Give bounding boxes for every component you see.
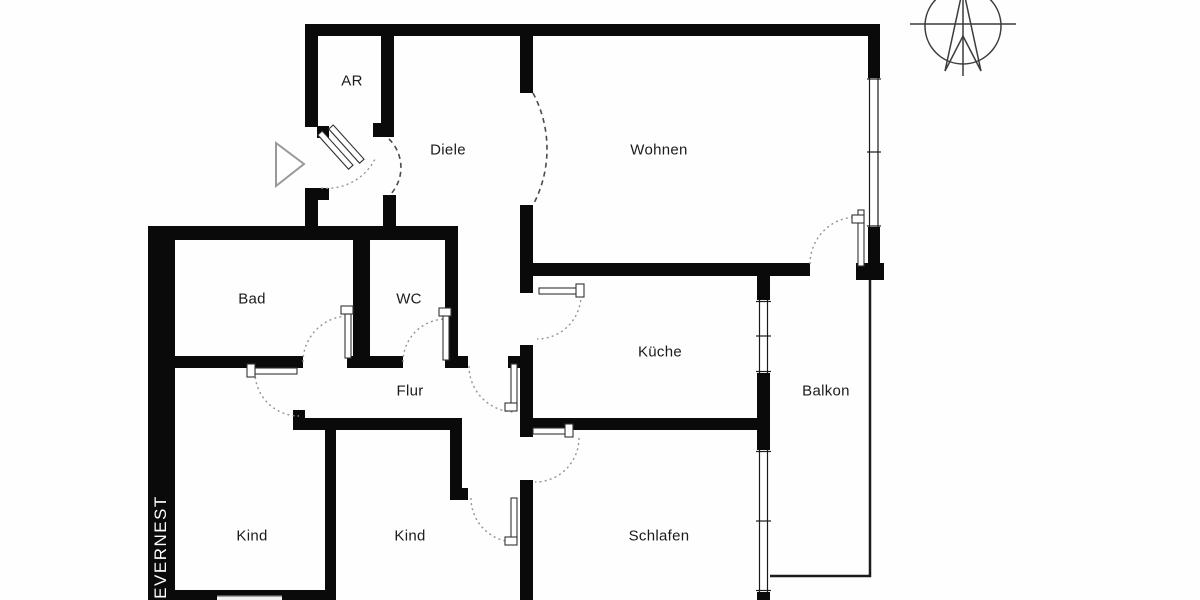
brand-watermark: EVERNEST [151, 495, 171, 599]
wall-schlafen-right-end [757, 592, 770, 600]
wall-entry-left-top [305, 24, 318, 127]
windows [217, 78, 882, 600]
room-label-kind-1: Kind [236, 528, 267, 545]
wall-entry-jamb-2 [317, 188, 329, 200]
room-label-wc: WC [396, 291, 422, 308]
wall-center-1 [520, 24, 533, 93]
room-label-wohnen: Wohnen [630, 142, 687, 159]
wall-ar-right [381, 36, 394, 123]
window-wohnen [866, 78, 882, 227]
room-label-bad: Bad [238, 291, 266, 308]
hinge-kueche [576, 284, 584, 297]
wall-bad-bottom [173, 356, 303, 368]
room-label-flur: Flur [396, 383, 423, 400]
hinge-kind2 [505, 537, 517, 545]
door-arc-kueche [537, 295, 581, 339]
wall-flur-south [293, 418, 462, 430]
window-schlafen [755, 450, 772, 592]
room-label-diele: Diele [430, 142, 466, 159]
wall-kind1-bottom-left [175, 590, 217, 600]
door-leaf-kind2 [511, 498, 517, 540]
wall-kind1-bottom-over-window [217, 590, 282, 595]
hinge-bad [341, 306, 353, 314]
wall-bad-wc-divider [353, 240, 370, 356]
room-label-kueche: Küche [638, 344, 682, 361]
wall-kind2-right [450, 430, 462, 490]
wall-center-4 [520, 480, 533, 600]
hinge-kind1 [247, 364, 255, 377]
door-leaf-wc [443, 316, 449, 360]
floorplan-drawing [0, 0, 1200, 600]
wall-center-3 [520, 345, 533, 437]
room-label-schlafen: Schlafen [629, 528, 690, 545]
wall-kind2-foot [450, 488, 468, 500]
door-arc-schlafen [535, 438, 579, 482]
hinge-flur [505, 403, 517, 411]
room-label-balkon: Balkon [802, 383, 850, 400]
door-leaf-bad [345, 314, 351, 358]
floorplan-page: ARDieleWohnenBadWCKücheFlurBalkonKindKin… [0, 0, 1200, 600]
wall-right-mid [868, 227, 880, 268]
door-arc-kind2 [471, 498, 515, 542]
door-arc-balkon [810, 217, 857, 264]
wall-right-top [868, 24, 880, 78]
wall-kueche-right-2 [757, 373, 770, 450]
hinge-wc [439, 308, 451, 316]
door-arc-wc [403, 319, 446, 362]
window-kind1 [217, 595, 282, 600]
entrance-arrow-icon [276, 143, 304, 186]
wall-kind1-bottom-right [282, 590, 325, 600]
wall-bad-wc-top [148, 226, 458, 240]
balcony-railing [770, 280, 870, 576]
room-label-kind-2: Kind [394, 528, 425, 545]
hinge-schlafen [565, 424, 573, 437]
room-label-ar: AR [341, 73, 362, 90]
passage-arc-diele-wohnen [533, 93, 547, 205]
door-leaf-kind1 [255, 368, 297, 374]
compass-rose-icon [910, 0, 1016, 76]
wall-wc-bottom [347, 356, 403, 368]
door-arc-kind1 [255, 372, 299, 416]
door-leaf-flur [511, 364, 517, 406]
wall-center-2 [520, 205, 533, 293]
hinge-balkon [852, 215, 864, 223]
window-kueche [755, 300, 772, 373]
wall-kueche-right-1 [757, 264, 770, 300]
door-arc-bad [303, 316, 349, 362]
passage-arc-vestibule-diele [389, 139, 401, 196]
wall-ar-jamb [373, 123, 394, 137]
passage-arcs [389, 93, 547, 205]
wall-kind-divider [325, 418, 336, 600]
wall-top [305, 24, 880, 36]
